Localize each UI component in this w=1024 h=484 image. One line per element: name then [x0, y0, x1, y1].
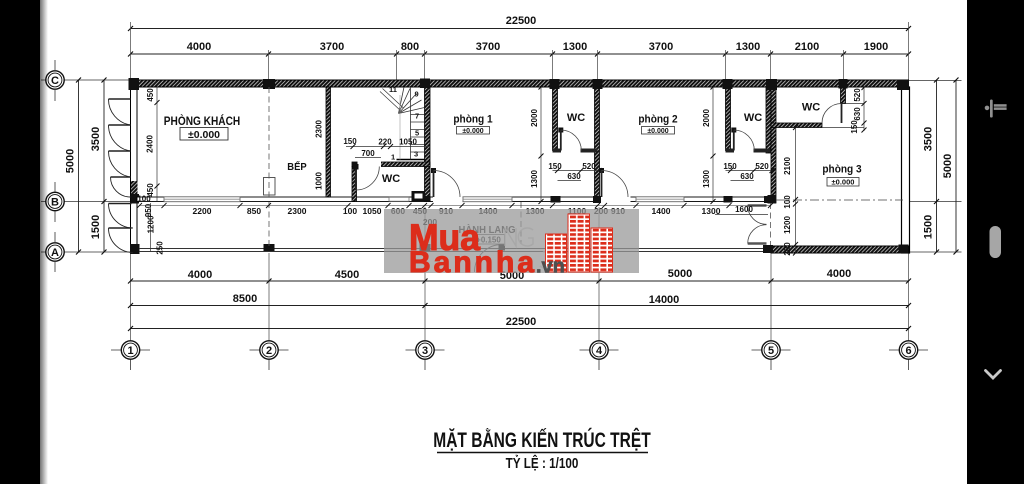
svg-text:250: 250: [156, 241, 165, 255]
svg-text:1300: 1300: [736, 41, 760, 53]
svg-text:±0.000: ±0.000: [647, 128, 668, 135]
svg-text:200: 200: [783, 242, 792, 256]
svg-text:1050: 1050: [399, 138, 417, 147]
svg-text:3700: 3700: [320, 41, 344, 53]
svg-text:100: 100: [783, 195, 792, 209]
svg-text:850: 850: [247, 206, 261, 216]
svg-text:11: 11: [389, 85, 397, 94]
svg-text:2100: 2100: [783, 157, 792, 175]
svg-text:A: A: [51, 247, 59, 259]
svg-text:.vn: .vn: [536, 256, 565, 278]
svg-text:5000: 5000: [668, 268, 692, 280]
svg-text:1: 1: [127, 345, 133, 357]
svg-text:4500: 4500: [335, 269, 359, 281]
svg-text:2400: 2400: [146, 135, 155, 153]
svg-text:150: 150: [343, 137, 357, 146]
svg-text:22500: 22500: [506, 15, 537, 27]
svg-text:1900: 1900: [864, 41, 888, 53]
svg-text:3500: 3500: [923, 127, 935, 151]
svg-text:±0.000: ±0.000: [832, 178, 855, 187]
svg-text:3700: 3700: [476, 41, 500, 53]
svg-text:5000: 5000: [65, 149, 77, 173]
svg-text:1000: 1000: [315, 172, 324, 190]
svg-text:14000: 14000: [649, 294, 680, 306]
svg-text:8500: 8500: [233, 293, 257, 305]
svg-text:WC: WC: [382, 173, 400, 185]
svg-text:520: 520: [582, 162, 596, 171]
svg-text:1050: 1050: [363, 206, 382, 216]
svg-text:2: 2: [266, 345, 272, 357]
svg-text:6: 6: [905, 345, 911, 357]
svg-text:4000: 4000: [827, 268, 851, 280]
svg-text:3700: 3700: [649, 41, 673, 53]
svg-text:7: 7: [415, 112, 419, 121]
svg-text:4: 4: [596, 345, 603, 357]
svg-text:630: 630: [853, 107, 862, 121]
svg-text:1600: 1600: [735, 205, 753, 214]
svg-text:630: 630: [567, 172, 581, 181]
svg-text:TỶ LỆ : 1/100: TỶ LỆ : 1/100: [506, 455, 579, 472]
svg-text:9: 9: [415, 90, 419, 99]
svg-text:2300: 2300: [288, 206, 307, 216]
svg-text:150: 150: [850, 120, 859, 134]
svg-text:520: 520: [853, 88, 862, 102]
svg-text:700: 700: [361, 149, 375, 158]
svg-text:800: 800: [401, 41, 419, 53]
svg-text:150: 150: [723, 162, 737, 171]
svg-text:1200: 1200: [783, 216, 792, 234]
svg-text:22500: 22500: [506, 316, 537, 328]
svg-text:1500: 1500: [923, 215, 935, 239]
svg-text:1300: 1300: [563, 41, 587, 53]
svg-text:±0.000: ±0.000: [462, 128, 483, 135]
svg-text:BẾP: BẾP: [287, 162, 307, 174]
svg-text:MẶT BẰNG KIẾN TRÚC TRỆT: MẶT BẰNG KIẾN TRÚC TRỆT: [433, 428, 651, 452]
svg-text:1200: 1200: [147, 215, 156, 233]
svg-text:1: 1: [391, 153, 395, 162]
svg-text:3500: 3500: [90, 127, 102, 151]
svg-text:B: B: [51, 197, 59, 209]
svg-text:2200: 2200: [193, 206, 212, 216]
svg-text:2100: 2100: [795, 41, 819, 53]
svg-text:4000: 4000: [187, 41, 211, 53]
svg-text:220: 220: [378, 138, 392, 147]
svg-text:phòng 2: phòng 2: [638, 113, 677, 125]
svg-text:5: 5: [415, 129, 419, 138]
svg-text:2000: 2000: [702, 109, 711, 127]
svg-text:2000: 2000: [530, 109, 539, 127]
svg-text:4000: 4000: [188, 269, 212, 281]
svg-text:Bannha: Bannha: [409, 246, 537, 279]
svg-text:C: C: [51, 75, 59, 87]
svg-text:1500: 1500: [90, 215, 102, 239]
svg-text:450: 450: [146, 88, 155, 102]
svg-text:PHÒNG KHÁCH: PHÒNG KHÁCH: [164, 114, 241, 128]
svg-text:1400: 1400: [652, 206, 671, 216]
svg-text:520: 520: [755, 162, 769, 171]
svg-text:3: 3: [422, 345, 428, 357]
svg-text:1300: 1300: [530, 170, 539, 188]
svg-text:5: 5: [768, 345, 774, 357]
svg-text:WC: WC: [744, 112, 762, 124]
svg-text:1300: 1300: [702, 206, 721, 216]
svg-text:2300: 2300: [315, 120, 324, 138]
svg-text:3: 3: [414, 150, 418, 159]
svg-text:±0.000: ±0.000: [188, 129, 220, 141]
svg-text:WC: WC: [567, 112, 585, 124]
svg-text:WC: WC: [802, 102, 820, 114]
svg-text:630: 630: [740, 172, 754, 181]
svg-text:phòng 3: phòng 3: [822, 163, 861, 175]
svg-text:100: 100: [343, 206, 357, 216]
svg-text:phòng 1: phòng 1: [453, 113, 492, 125]
svg-text:1300: 1300: [702, 170, 711, 188]
svg-text:100: 100: [137, 195, 151, 204]
svg-text:150: 150: [548, 162, 562, 171]
svg-text:5000: 5000: [942, 154, 954, 178]
